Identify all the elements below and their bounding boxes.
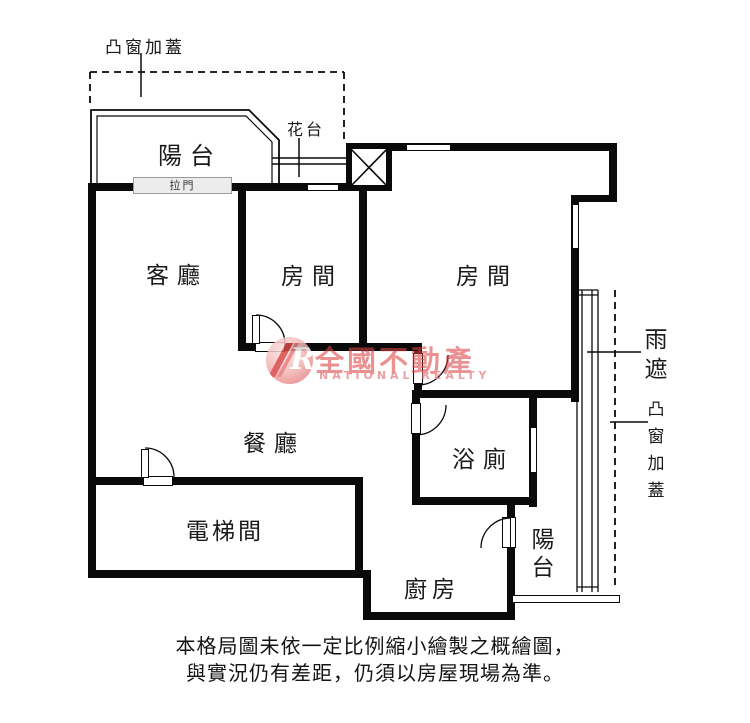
floor-plan: 凸窗加蓋 陽台 花台 拉門 客廳 房間 房間 餐廳 浴廁 電梯間 廚房 陽台 雨…: [0, 0, 750, 723]
shaft-x-icon: [349, 147, 389, 188]
rain-shelter-lines: [577, 290, 598, 592]
watermark-brand-en-text: NATIONAL REALTY: [319, 369, 491, 382]
balcony-outline-inner: [97, 116, 272, 183]
watermark-logo-icon: R: [266, 337, 313, 384]
flowerbed-lines: [272, 158, 348, 164]
door-arc-kitchen: [481, 518, 511, 548]
door-arc-dining: [145, 448, 174, 477]
door-arc-bathroom: [416, 405, 446, 435]
logo-letter: R: [290, 342, 313, 377]
bay-window-dashed-top: [90, 72, 344, 142]
